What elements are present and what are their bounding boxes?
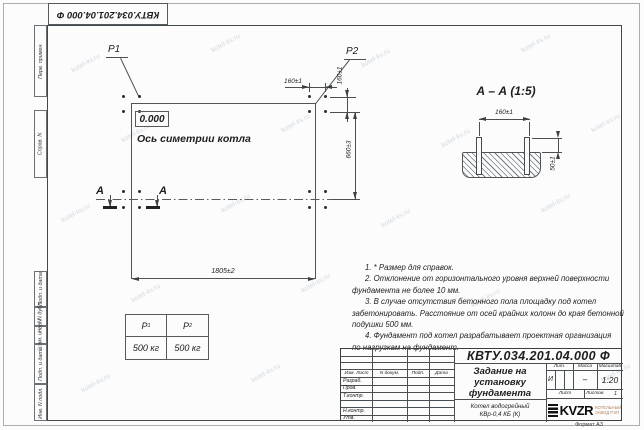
tb-col-n-dokum: N докум. xyxy=(372,369,407,377)
dim-ext-line xyxy=(332,199,360,200)
anchor-bolt-dot xyxy=(138,206,141,209)
anchor-bolt-dot xyxy=(308,95,311,98)
tb-scale-label: Масштаб xyxy=(597,363,623,370)
load-table: P1 P2 500 кг 500 кг xyxy=(125,314,209,360)
load-table-value-p2: 500 кг xyxy=(167,337,208,359)
anchor-bolt-dot xyxy=(324,110,327,113)
title-block: Изм. Лист N докум. Подп. Дата Разраб. Пр… xyxy=(340,348,622,421)
dim-text-50: 50±1 xyxy=(550,152,557,176)
tb-sheets-label: Листов xyxy=(586,389,610,398)
tb-row-razrab: Разраб. xyxy=(343,377,372,385)
section-cut-bar xyxy=(103,206,117,209)
load-table-header-p2: P2 xyxy=(167,315,208,337)
format-label: Формат А3 xyxy=(556,422,622,428)
zero-level-text: 0.000 xyxy=(139,114,164,125)
dim-arrow xyxy=(345,112,349,119)
dim-arrow xyxy=(556,131,560,138)
dim-text-160-section: 160±1 xyxy=(487,109,521,116)
note-line: 3. В случае отсутствия бетонного пола пл… xyxy=(352,296,620,307)
boiler-symmetry-centerline xyxy=(96,199,360,200)
dim-arrow xyxy=(325,85,332,89)
note-line: 1. * Размер для справок. xyxy=(352,262,620,273)
anchor-bolt-dot xyxy=(122,95,125,98)
dim-ext-line xyxy=(479,122,480,136)
tb-mass-value: – xyxy=(573,370,597,389)
note-line: забетонировать. Расстояние от осей крайн… xyxy=(352,308,620,319)
margin-label-vzam-inv: Взам. инв. N xyxy=(34,326,47,344)
zero-level-box: 0.000 xyxy=(135,111,169,127)
dim-ext-line xyxy=(529,122,530,136)
note-line: 4. Фундамент под котел разрабатывает про… xyxy=(352,330,620,341)
dim-text-1805: 1805±2 xyxy=(190,268,256,275)
top-doc-number-text: КВТУ.034.201.04.000 Ф xyxy=(57,9,159,20)
note-line: фундамента не более 10 мм. xyxy=(352,285,620,296)
tb-row-prov: Пров. xyxy=(343,385,372,393)
tb-row-tkontr: Т.контр. xyxy=(343,392,372,400)
anchor-bolt-dot xyxy=(324,190,327,193)
dim-text-160h: 160±1 xyxy=(281,78,305,85)
tb-lit-label: Лит. xyxy=(546,363,573,370)
section-letter-a-left: А xyxy=(96,185,110,197)
dim-line xyxy=(558,138,559,152)
note-line: 2. Отклонение от горизонтального уровня … xyxy=(352,273,620,284)
anchor-bolt-dot xyxy=(122,110,125,113)
anchor-bolt-dot xyxy=(324,206,327,209)
top-doc-number-stamp: КВТУ.034.201.04.000 Ф xyxy=(48,3,168,25)
dim-arrow xyxy=(308,277,315,281)
tb-col-data: Дата xyxy=(429,369,454,377)
p1-underline xyxy=(106,57,128,58)
anchor-bolt-dot xyxy=(122,206,125,209)
dim-arrow xyxy=(353,192,357,199)
margin-label-inv-podl: Инв. N подл. xyxy=(34,384,47,421)
dim-arrow xyxy=(353,112,357,119)
tb-sheets-value: 1 xyxy=(610,389,621,398)
dim-line-660 xyxy=(355,112,356,199)
tb-col-podp: Подп. xyxy=(407,369,429,377)
load-table-header-p1: P1 xyxy=(126,315,167,337)
kvzr-logo-waves-icon xyxy=(548,403,558,417)
section-letter-a-right: А xyxy=(159,185,173,197)
anchor-bolt-left xyxy=(476,137,482,175)
tb-mass-label: Масса xyxy=(573,363,597,370)
section-cut-bar xyxy=(146,206,160,209)
tb-drawing-title: Задание на установку фундамента xyxy=(454,365,546,399)
note-line: подушки 500 мм. xyxy=(352,319,620,330)
boiler-axis-label: Ось симетрии котла xyxy=(137,133,267,145)
dim-arrow xyxy=(523,117,530,121)
notes-block: 1. * Размер для справок. 2. Отклонение о… xyxy=(352,262,620,353)
tb-sheet-label: Лист xyxy=(546,389,584,398)
tb-col-izm-list: Изм. Лист xyxy=(341,369,372,377)
kvzr-logo-text: KVZR xyxy=(560,403,593,418)
dim-arrow xyxy=(132,277,139,281)
load-point-p1-label: P1 xyxy=(108,44,132,55)
margin-label-podp-data-2: Подп. и дата xyxy=(34,344,47,384)
tb-row-blank xyxy=(343,400,372,408)
dim-ext-line xyxy=(330,97,356,98)
anchor-bolt-dot xyxy=(308,190,311,193)
margin-label-sprav-n: Справ. N xyxy=(34,110,47,178)
dim-text-660: 660±3 xyxy=(346,137,353,163)
anchor-bolt-dot xyxy=(122,190,125,193)
drawing-sheet: kotel-kv.ru kotel-kv.ru kotel-kv.ru kote… xyxy=(0,0,644,430)
tb-logo-area: KVZR КОТЕЛЬНЫЙ ЗАВОД РЭП xyxy=(546,398,623,422)
anchor-bolt-dot xyxy=(324,95,327,98)
kvzr-logo-caption: КОТЕЛЬНЫЙ ЗАВОД РЭП xyxy=(595,405,621,415)
tb-product-name: Котел водогрейный КВр-0,4 КБ (К) xyxy=(454,400,546,421)
dim-arrow xyxy=(556,152,560,159)
load-table-value-p1: 500 кг xyxy=(126,337,167,359)
anchor-bolt-dot xyxy=(308,206,311,209)
dim-arrow xyxy=(302,85,309,89)
tb-doc-number: КВТУ.034.201.04.000 Ф xyxy=(454,349,623,363)
margin-label-perv-primen: Перв. примен. xyxy=(34,25,47,97)
anchor-bolt-right xyxy=(524,137,530,175)
tb-lit-value: И xyxy=(546,370,555,389)
tb-scale-value: 1:20 xyxy=(597,370,623,389)
dim-text-160v: 160±1 xyxy=(337,63,344,89)
anchor-bolt-dot xyxy=(308,110,311,113)
anchor-bolt-dot xyxy=(138,190,141,193)
load-point-p2-label: P2 xyxy=(346,46,370,57)
dim-arrow xyxy=(479,117,486,121)
tb-row-utv: Утв. xyxy=(343,415,372,423)
section-title: А – А (1:5) xyxy=(460,84,552,98)
tb-row-nkontr: Н.контр. xyxy=(343,407,372,415)
dim-arrow xyxy=(345,90,349,97)
